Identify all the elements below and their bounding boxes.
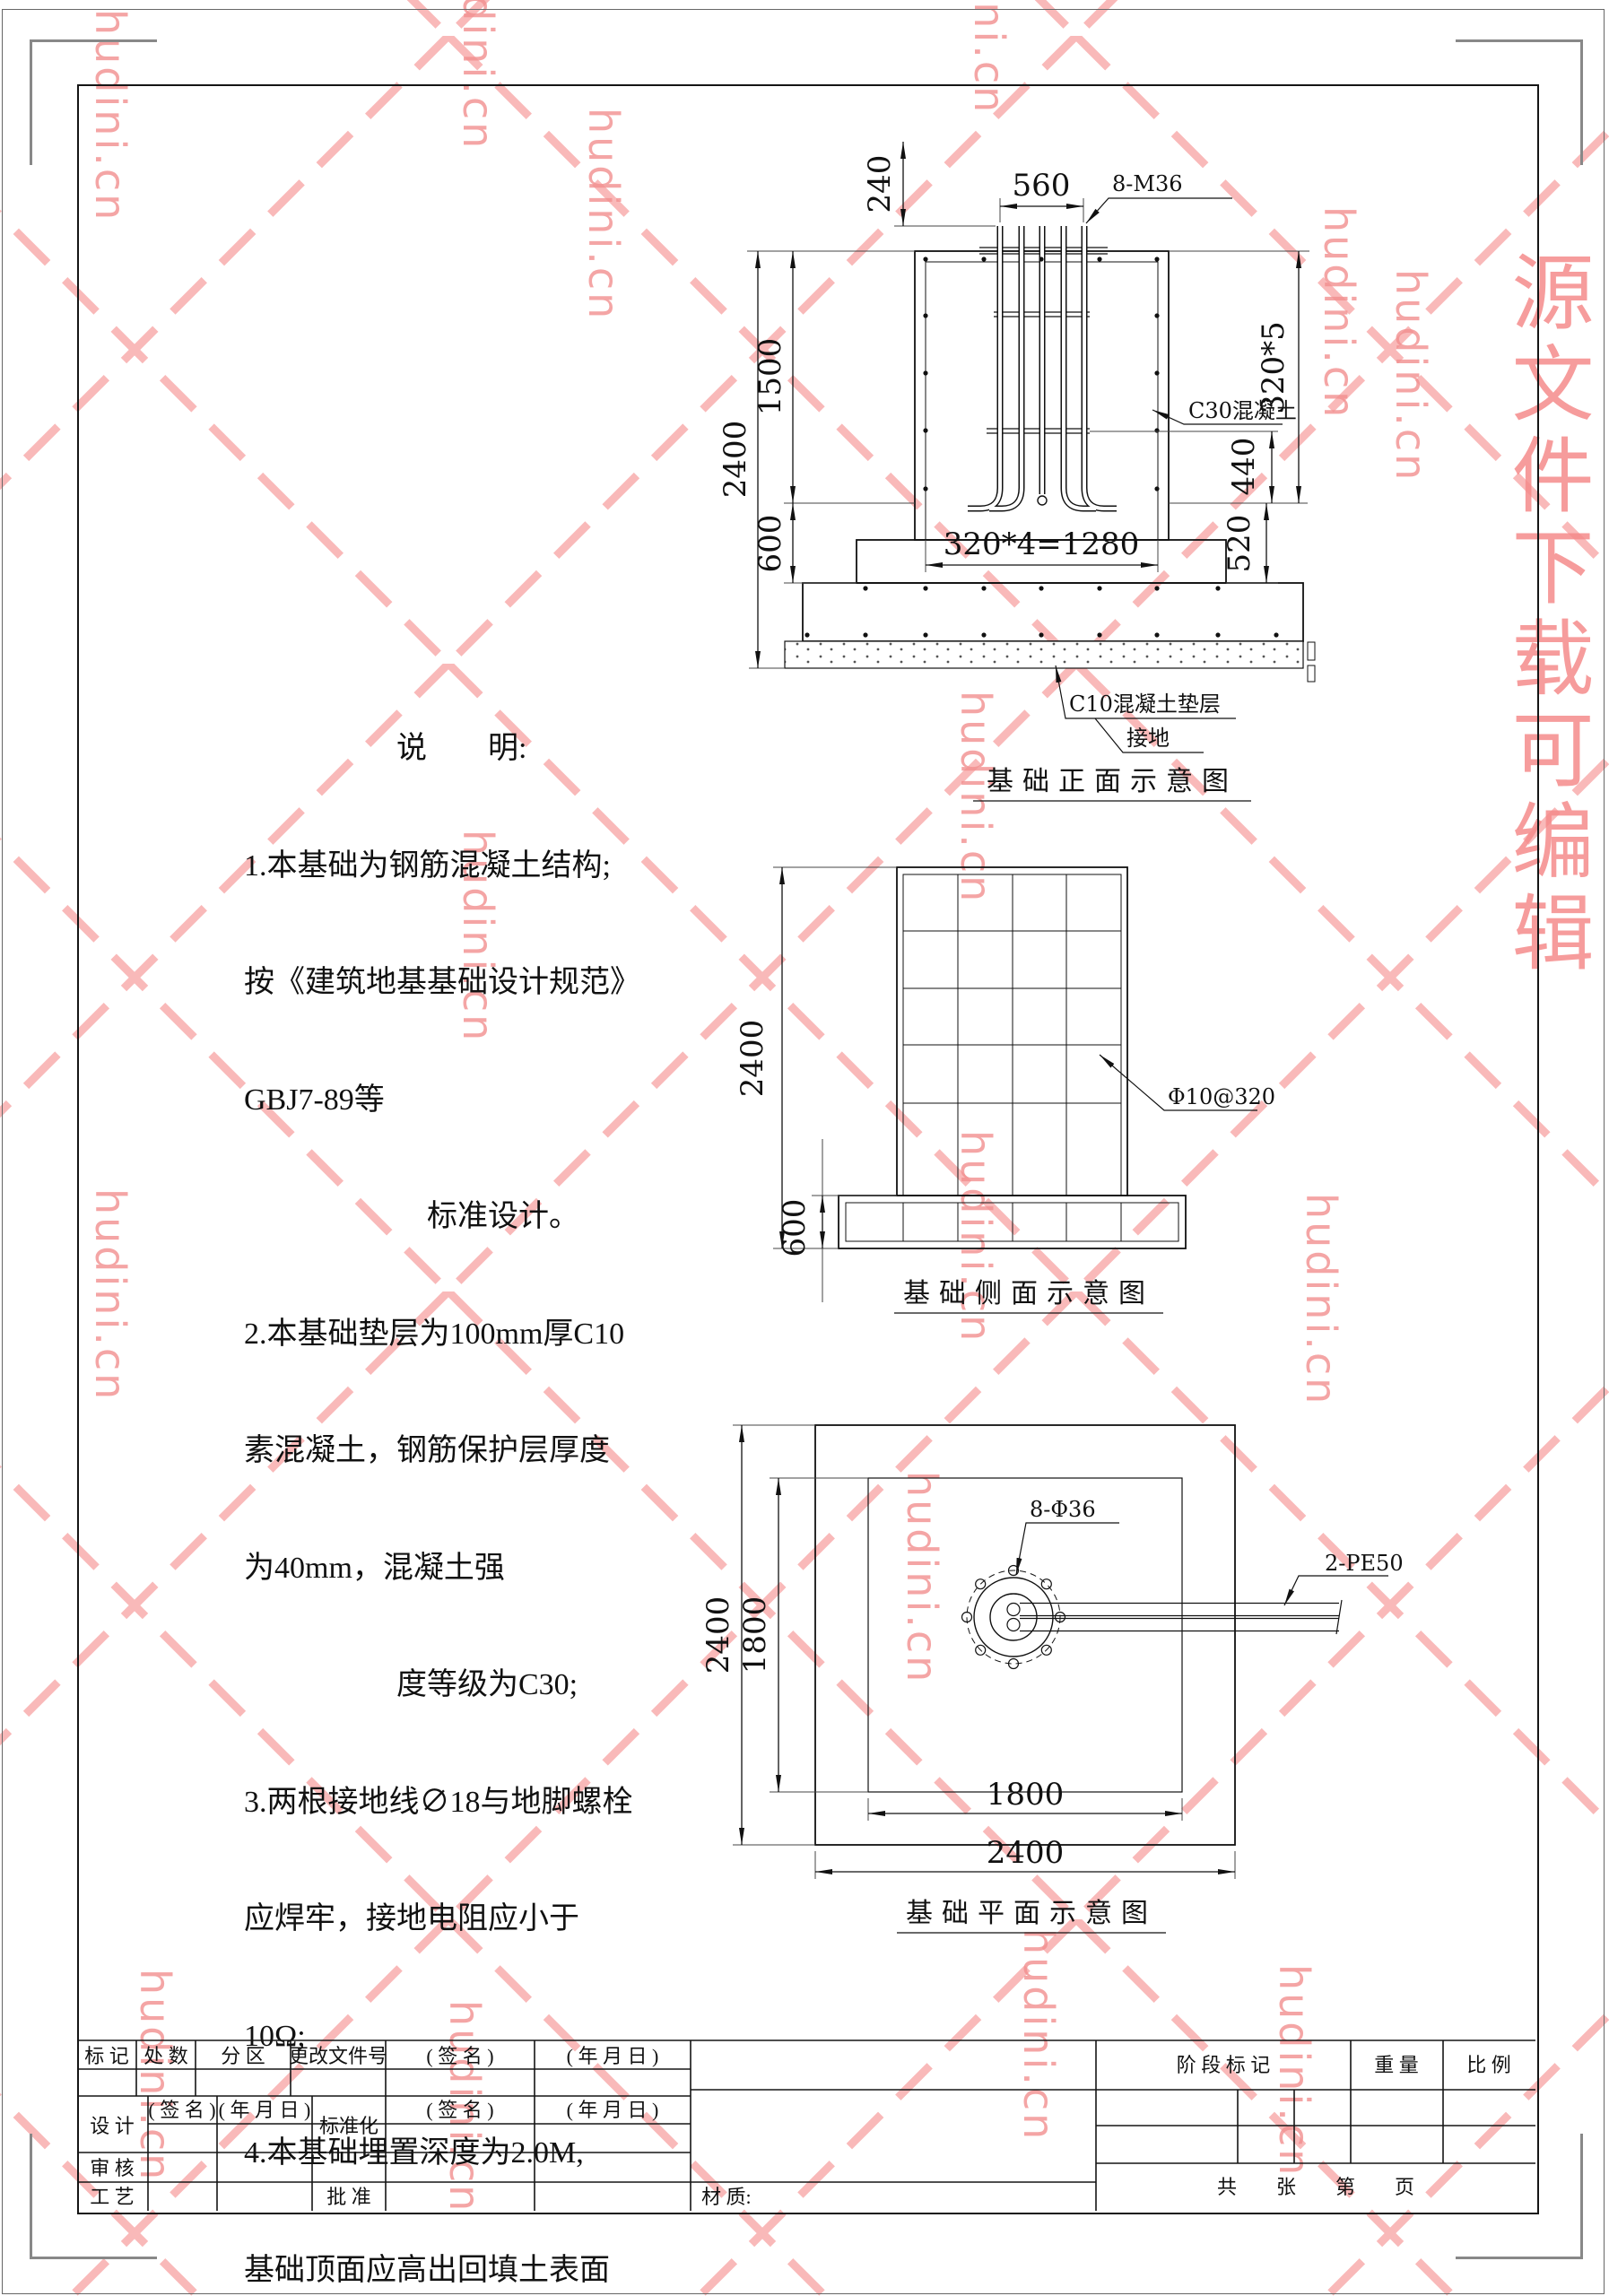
tb-weight: 重 量 — [1374, 2054, 1419, 2076]
tb-scale: 比 例 — [1466, 2054, 1511, 2076]
tb-date-1: ( 年 月 日 ) — [567, 2045, 659, 2067]
front-dim-440: 440 — [1226, 438, 1262, 496]
front-dim-520: 520 — [1222, 515, 1257, 573]
tb-count: 处 数 — [144, 2045, 188, 2067]
front-view — [747, 142, 1315, 1196]
plan-view-caption: 基础平面示意图 — [906, 1899, 1157, 1928]
bolt-circle-flange — [962, 1566, 1065, 1669]
front-label-concrete: C30混凝土 — [1188, 398, 1297, 423]
front-view-caption: 基础正面示意图 — [987, 767, 1238, 796]
tb-design: 设 计 — [90, 2115, 135, 2137]
front-dim-2400: 2400 — [718, 421, 753, 499]
plan-dim-2400-left: 2400 — [700, 1596, 736, 1674]
tb-sign-1: ( 签 名 ) — [426, 2045, 493, 2067]
dimension-lines — [782, 867, 822, 1248]
front-dim-320x4: 320*4=1280 — [944, 526, 1140, 562]
side-dim-2400: 2400 — [735, 1020, 770, 1098]
tb-standardization: 标准化 — [319, 2115, 378, 2137]
grounding-pipes — [1020, 1600, 1342, 1634]
side-label-rebar: Φ10@320 — [1168, 1084, 1275, 1109]
tb-date-3: ( 年 月 日 ) — [567, 2099, 659, 2121]
plan-label-holes: 8-Φ36 — [1030, 1497, 1096, 1522]
tb-material: 材 质: — [701, 2186, 752, 2208]
extension-lines — [733, 1425, 1235, 1879]
plan-label-pipes: 2-PE50 — [1325, 1551, 1404, 1576]
tb-review: 审 核 — [90, 2157, 135, 2179]
plan-dim-1800-bottom: 1800 — [987, 1777, 1065, 1813]
tb-sign-3: ( 签 名 ) — [426, 2099, 493, 2121]
tb-mark: 标 记 — [84, 2045, 129, 2067]
front-dim-560: 560 — [1013, 168, 1071, 204]
tb-sign-2: ( 签 名 ) — [148, 2099, 215, 2121]
tb-process: 工 艺 — [90, 2186, 135, 2208]
side-dim-600: 600 — [777, 1199, 813, 1257]
extension-lines — [747, 198, 1309, 1196]
plan-dim-2400-bottom: 2400 — [987, 1835, 1065, 1871]
anchor-bolts — [968, 226, 1117, 509]
front-label-ground: 接地 — [1126, 726, 1170, 751]
front-label-cushion: C10混凝土垫层 — [1069, 691, 1221, 717]
tb-pages: 共 张 第 页 — [1217, 2176, 1414, 2198]
front-label-bolts: 8-M36 — [1112, 171, 1183, 196]
front-dim-600: 600 — [752, 515, 788, 573]
side-view-caption: 基础侧面示意图 — [903, 1279, 1154, 1309]
front-dim-240: 240 — [862, 155, 898, 213]
front-dim-1500: 1500 — [752, 338, 788, 416]
tb-date-2: ( 年 月 日 ) — [219, 2099, 311, 2121]
tb-stage-mark: 阶 段 标 记 — [1177, 2054, 1271, 2076]
plan-dim-1800-left: 1800 — [737, 1596, 773, 1674]
tb-zone: 分 区 — [221, 2045, 265, 2067]
tb-approve: 批 准 — [326, 2186, 371, 2208]
drawing-sheet: hudini.cn hudini.cn hudini.cn hudini.cn … — [0, 0, 1609, 2296]
tb-change-no: 更改文件号 — [289, 2045, 387, 2067]
